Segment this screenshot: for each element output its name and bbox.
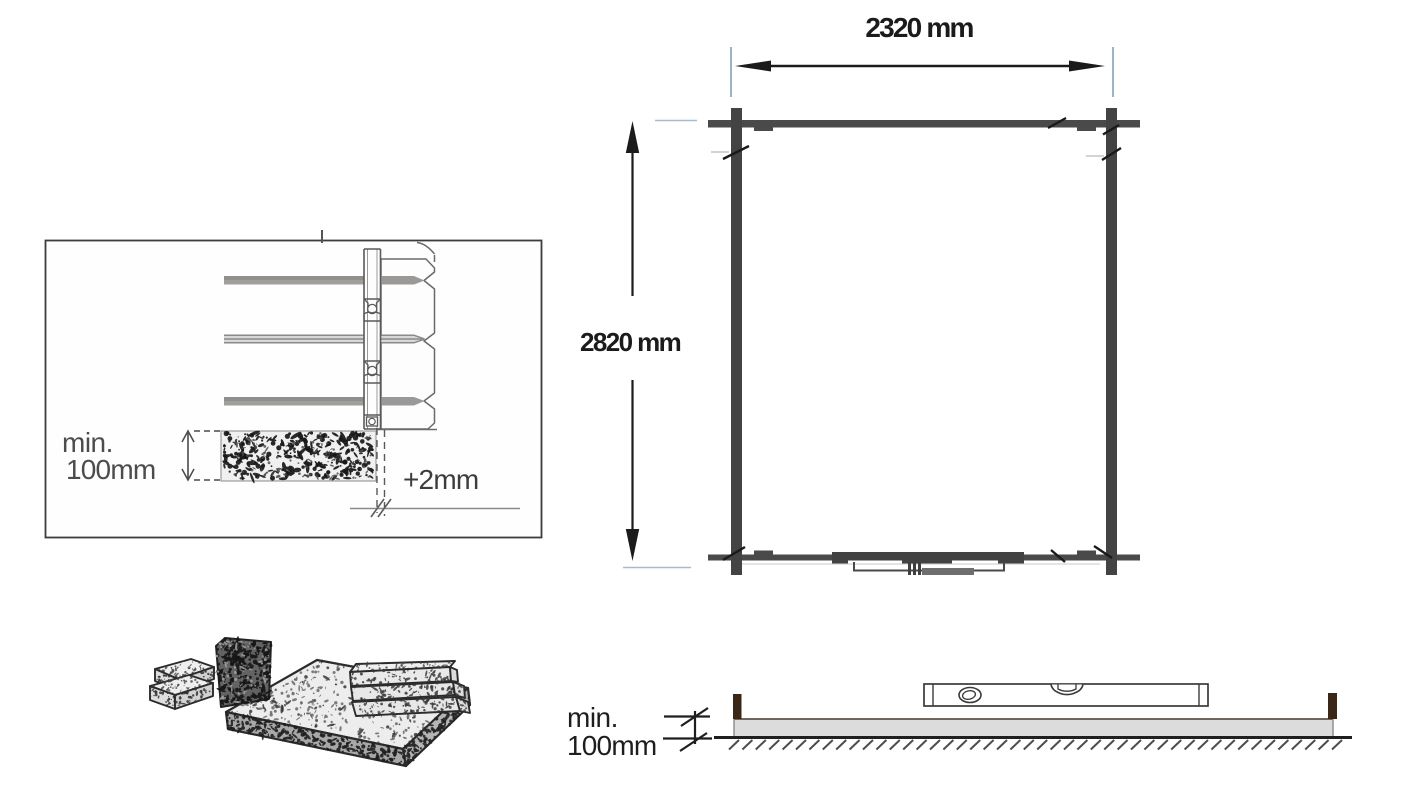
svg-text:2820 mm: 2820 mm	[580, 327, 681, 357]
svg-text:+2mm: +2mm	[403, 464, 478, 495]
svg-text:100mm: 100mm	[66, 454, 155, 485]
svg-text:2320 mm: 2320 mm	[865, 12, 973, 43]
svg-text:min.: min.	[567, 702, 618, 733]
svg-text:100mm: 100mm	[567, 730, 656, 761]
